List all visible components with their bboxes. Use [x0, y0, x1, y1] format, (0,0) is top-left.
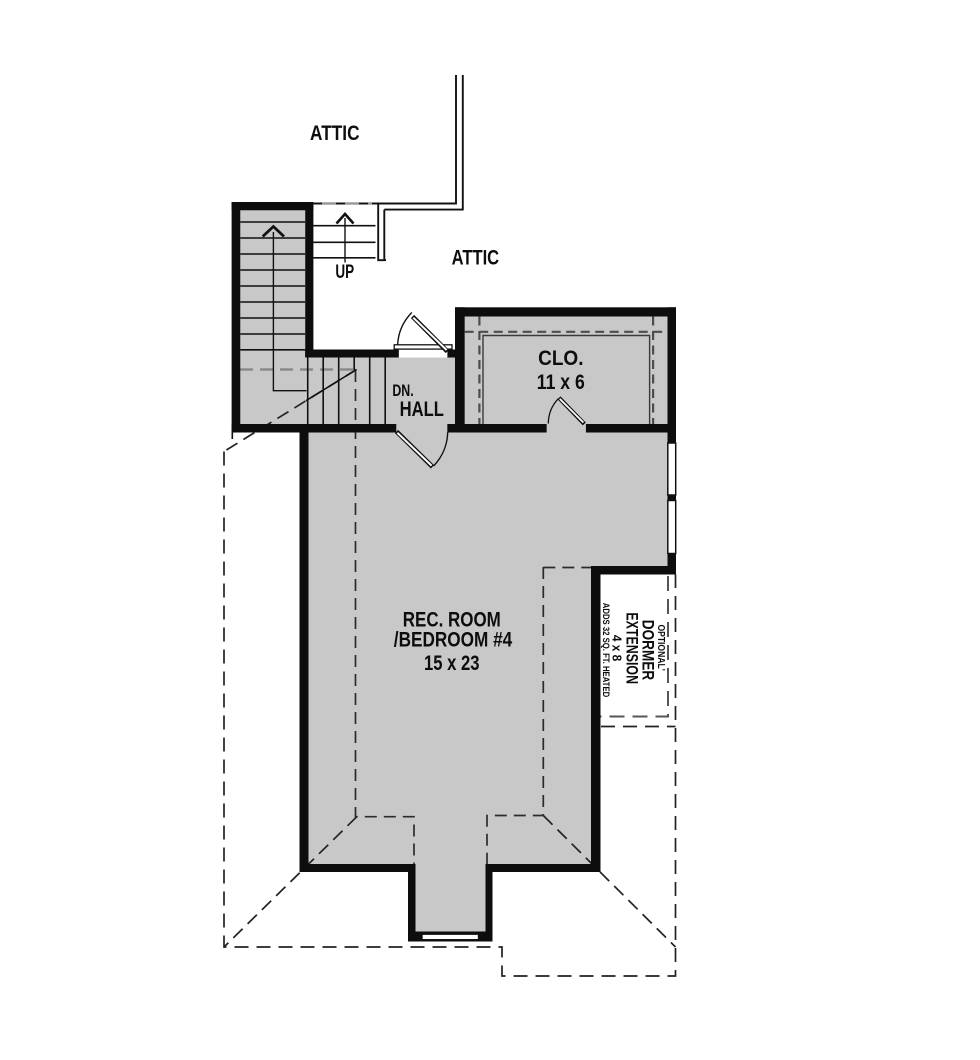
svg-text:15 x 23: 15 x 23 [424, 652, 480, 675]
svg-text:UP: UP [335, 262, 354, 283]
svg-text:CLO.: CLO. [538, 346, 583, 370]
svg-text:ADDS 32 SQ. FT. HEATED: ADDS 32 SQ. FT. HEATED [600, 603, 611, 697]
svg-text:HALL: HALL [400, 397, 444, 421]
svg-text:/BEDROOM #4: /BEDROOM #4 [394, 628, 513, 651]
svg-text:ATTIC: ATTIC [310, 122, 360, 145]
svg-text:ATTIC: ATTIC [452, 247, 500, 270]
svg-text:11 x 6: 11 x 6 [537, 370, 585, 394]
